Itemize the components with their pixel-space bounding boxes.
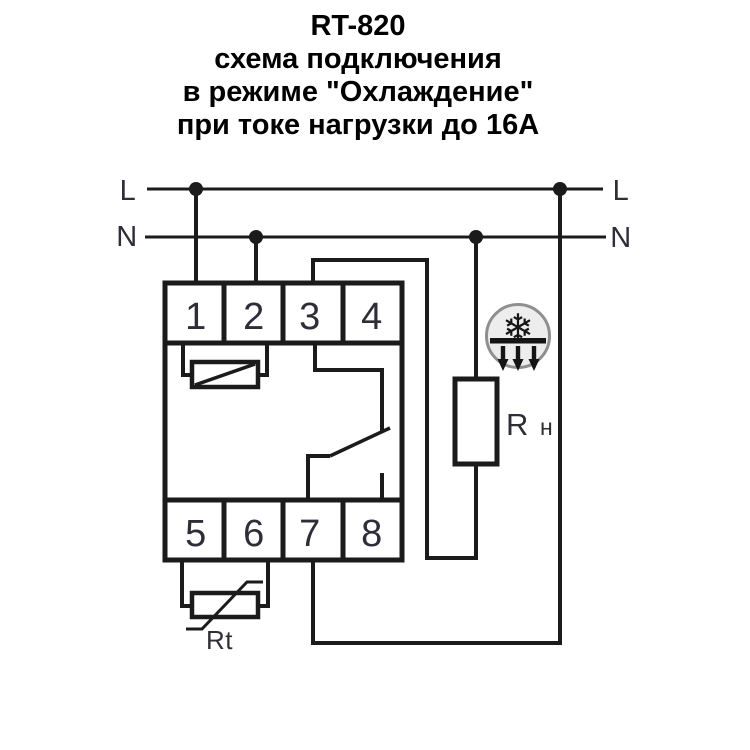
- junction-dot-l-right: [553, 182, 567, 196]
- junction-dot-l-left: [189, 182, 203, 196]
- load-resistor-label: R н: [506, 407, 553, 442]
- contact-lead-terminal3: [315, 343, 382, 432]
- load-resistor-box: [455, 379, 497, 464]
- label-n-left: N: [116, 221, 137, 253]
- temperature-sensor-label: Rt: [206, 625, 233, 655]
- terminal-3-label: 3: [299, 296, 321, 338]
- terminal-6-label: 6: [243, 513, 265, 555]
- junction-dot-n-right: [469, 230, 483, 244]
- page: RT-820 схема подключения в режиме "Охлаж…: [0, 0, 750, 750]
- terminal-5-label: 5: [185, 513, 207, 555]
- wiring-diagram: ❄ L N L N 1 2 3 4 5 6 7 8 R н: [0, 0, 750, 750]
- terminal-4-label: 4: [361, 296, 383, 338]
- terminal-7-label: 7: [299, 513, 321, 555]
- cooling-icon-bar: [490, 338, 546, 344]
- diagram-labels: L N L N 1 2 3 4 5 6 7 8 R н Rt: [116, 175, 631, 655]
- cooling-icon-arrows: [498, 346, 540, 371]
- load-resistor-label-r: R: [506, 407, 529, 442]
- label-n-right: N: [610, 222, 631, 254]
- contact-blade: [330, 428, 390, 456]
- sensor-thermistor-stroke: [186, 582, 263, 629]
- label-l-right: L: [613, 175, 630, 207]
- terminal-1-label: 1: [185, 296, 207, 338]
- terminal-dividers-bottom: [224, 500, 343, 560]
- terminal-dividers-top: [224, 283, 343, 343]
- wire-terminal3-loop-to-load: [313, 260, 476, 558]
- label-l-left: L: [120, 175, 137, 207]
- terminal-2-label: 2: [243, 296, 265, 338]
- junction-dot-n-left: [249, 230, 263, 244]
- coil-diagonal: [195, 364, 255, 385]
- junction-dots: [189, 182, 567, 244]
- terminal-8-label: 8: [361, 513, 383, 555]
- contact-pivot-terminal7: [308, 456, 330, 500]
- load-resistor: [455, 379, 497, 464]
- load-resistor-label-sub: н: [540, 414, 553, 440]
- temperature-sensor: [182, 560, 268, 629]
